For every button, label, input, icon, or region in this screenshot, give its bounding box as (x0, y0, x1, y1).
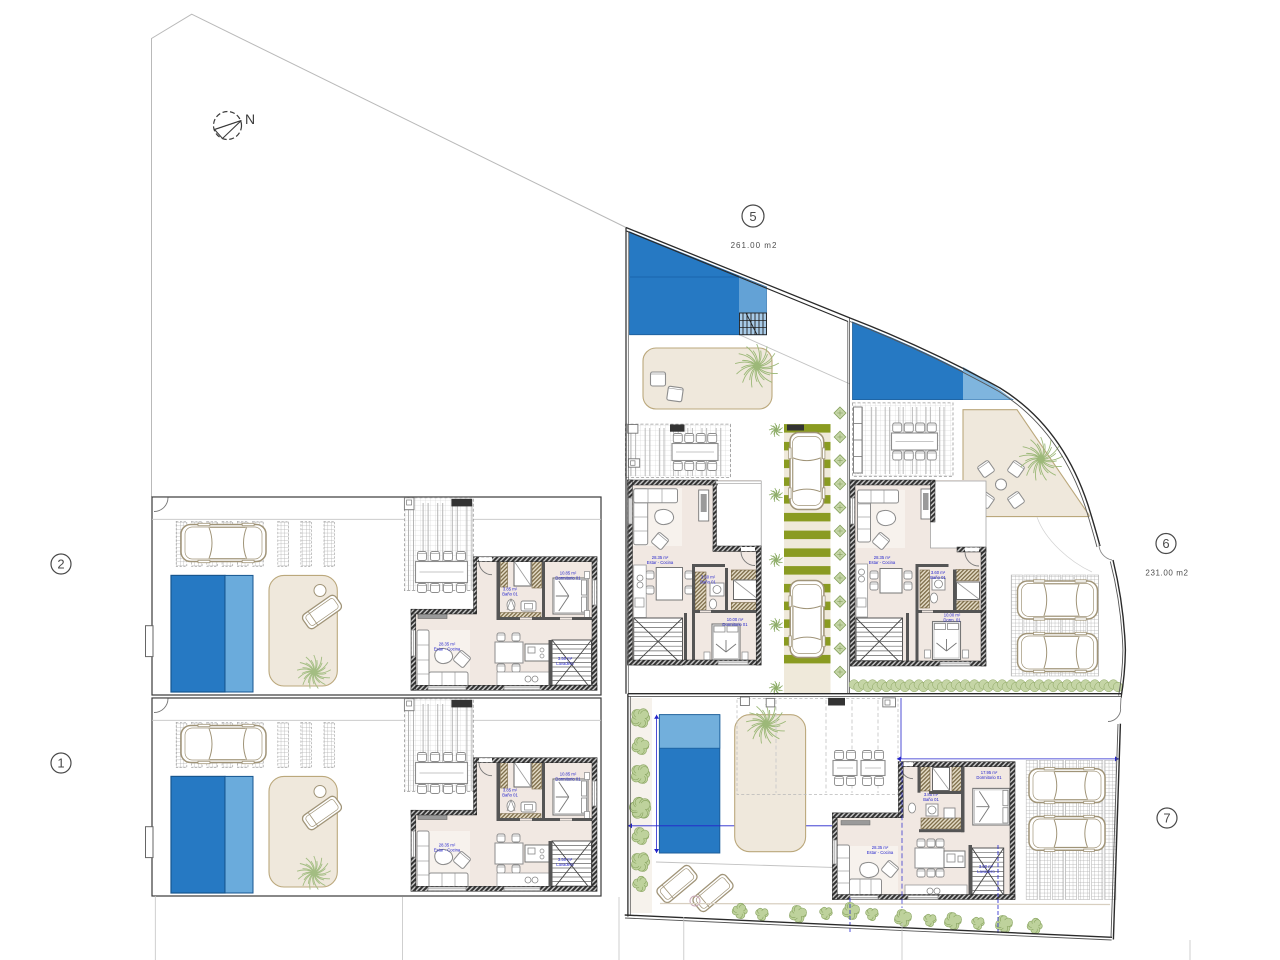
svg-text:1: 1 (57, 756, 64, 771)
svg-text:2: 2 (57, 557, 64, 572)
svg-text:Dormitorio 01: Dormitorio 01 (555, 576, 581, 581)
svg-text:5: 5 (749, 209, 756, 224)
svg-text:Baño 01: Baño 01 (930, 575, 946, 580)
svg-text:Baño 01: Baño 01 (502, 592, 518, 597)
svg-text:Dormitorio 01: Dormitorio 01 (555, 777, 581, 782)
svg-text:Dormitorio 01: Dormitorio 01 (976, 775, 1002, 780)
svg-text:Estar - Cocina: Estar - Cocina (434, 647, 461, 652)
svg-text:Lavadero: Lavadero (977, 869, 995, 874)
svg-text:Dorm. 01: Dorm. 01 (943, 618, 961, 623)
svg-text:261.00 m2: 261.00 m2 (731, 241, 778, 250)
svg-text:7: 7 (1163, 811, 1170, 826)
svg-text:Baño 01: Baño 01 (923, 797, 939, 802)
svg-text:Estar - Cocina: Estar - Cocina (647, 560, 674, 565)
svg-text:Estar - Cocina: Estar - Cocina (869, 560, 896, 565)
svg-text:N: N (245, 111, 255, 127)
svg-text:Dormitorio 01: Dormitorio 01 (722, 622, 748, 627)
svg-text:Baño 01: Baño 01 (502, 793, 518, 798)
svg-text:Lavadero: Lavadero (556, 661, 574, 666)
svg-text:Estar - Cocina: Estar - Cocina (434, 848, 461, 853)
svg-text:Lavadero: Lavadero (556, 862, 574, 867)
svg-text:231.00 m2: 231.00 m2 (1145, 569, 1188, 578)
svg-text:Baño 01: Baño 01 (700, 580, 716, 585)
svg-text:6: 6 (1162, 536, 1169, 551)
svg-text:Estar - Cocina: Estar - Cocina (867, 850, 894, 855)
